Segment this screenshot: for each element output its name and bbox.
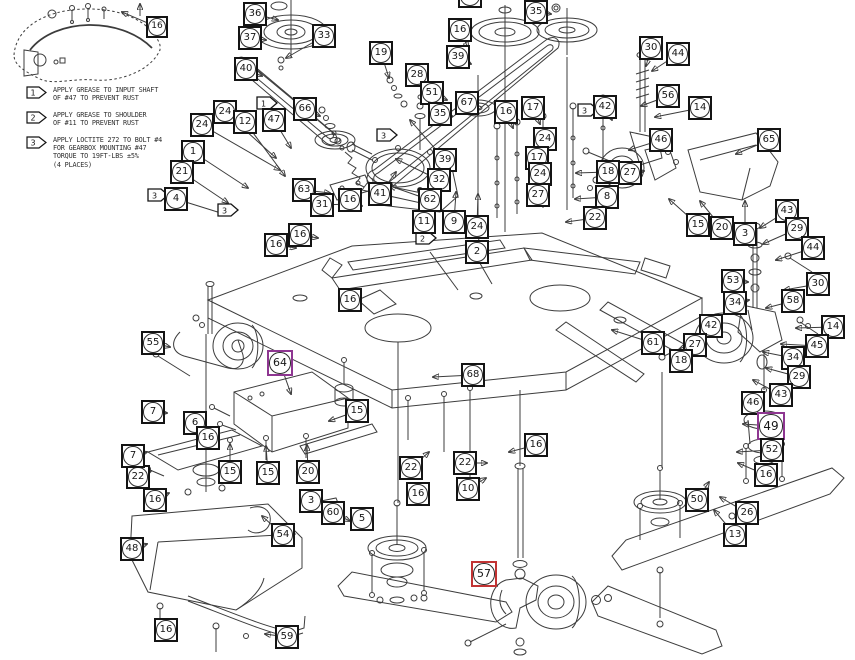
svg-text:3: 3 (30, 138, 35, 147)
note-text: APPLY GREASE TO INPUT SHAFTOF #47 TO PRE… (53, 86, 158, 103)
machine-silhouette (14, 4, 160, 82)
note-text: APPLY GREASE TO SHOULDEROF #11 TO PREVEN… (53, 111, 146, 128)
svg-text:2: 2 (30, 113, 35, 122)
svg-text:3: 3 (381, 132, 386, 141)
left-caster-and-panels (130, 282, 348, 653)
svg-text:3: 3 (152, 192, 157, 201)
right-caster-column (659, 223, 818, 390)
note-flag-icon: 3 (26, 136, 48, 149)
note-flag-2: 2 (416, 232, 436, 244)
note-text: APPLY LOCTITE 272 TO BOLT #4FOR GEARBOX … (53, 136, 162, 170)
assembly-notes: 1APPLY GREASE TO INPUT SHAFTOF #47 TO PR… (26, 86, 184, 177)
assembly-note-1: 1APPLY GREASE TO INPUT SHAFTOF #47 TO PR… (26, 86, 184, 103)
mower-deck-exploded-parts-diagram: 133323 1APPLY GREASE TO INPUT SHAFTOF #4… (0, 0, 855, 660)
note-flag-3: 3 (377, 129, 397, 141)
svg-text:1: 1 (30, 89, 35, 98)
note-flag-icon: 1 (26, 86, 48, 99)
center-spindle-and-caster (338, 463, 612, 655)
right-strut-and-caster (583, 52, 778, 200)
note-flag-3: 3 (578, 104, 598, 116)
svg-text:3: 3 (222, 207, 227, 216)
assembly-note-3: 3APPLY LOCTITE 272 TO BOLT #4FOR GEARBOX… (26, 136, 184, 170)
svg-text:2: 2 (420, 235, 425, 244)
right-spindles-and-blades (592, 388, 844, 655)
svg-text:1: 1 (261, 100, 266, 109)
note-flag-3: 3 (148, 189, 168, 201)
assembly-note-2: 2APPLY GREASE TO SHOULDEROF #11 TO PREVE… (26, 111, 184, 128)
note-flag-3: 3 (218, 204, 238, 216)
note-flag-icon: 2 (26, 111, 48, 124)
svg-text:3: 3 (582, 107, 587, 116)
